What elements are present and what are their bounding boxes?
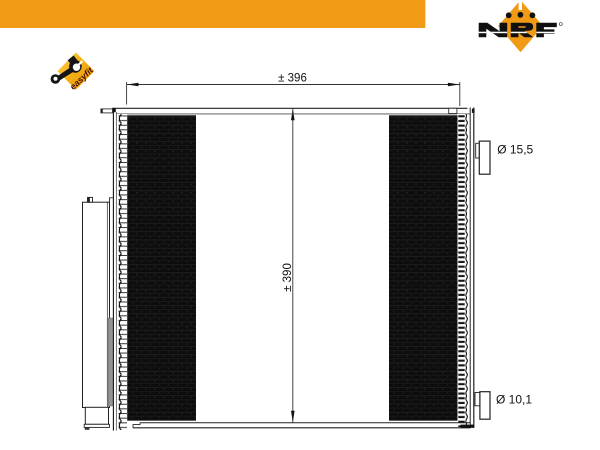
svg-text:Ø 15,5: Ø 15,5 [497, 142, 533, 156]
svg-text:Ø 10,1: Ø 10,1 [496, 392, 532, 406]
svg-text:± 396: ± 396 [278, 73, 307, 85]
svg-text:± 390: ± 390 [282, 263, 294, 292]
